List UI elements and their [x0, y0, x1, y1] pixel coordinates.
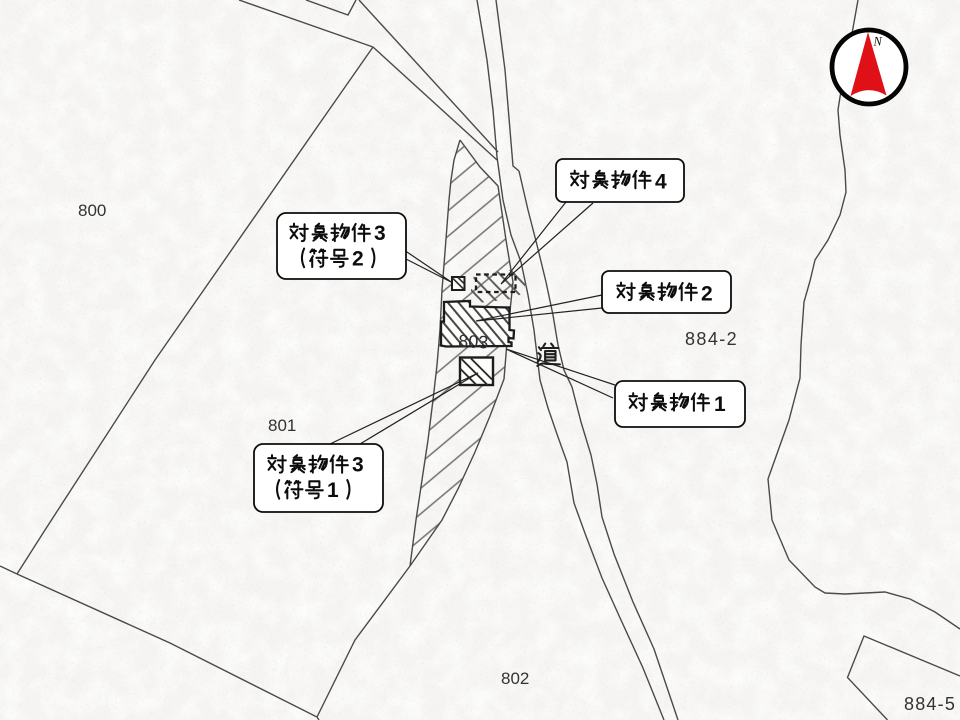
- svg-text:884-2: 884-2: [685, 329, 738, 349]
- svg-text:800: 800: [78, 201, 106, 220]
- svg-text:803: 803: [458, 331, 489, 353]
- svg-text:N: N: [873, 35, 883, 49]
- svg-text:2: 2: [352, 248, 364, 271]
- svg-text:2: 2: [701, 283, 713, 306]
- svg-text:1: 1: [714, 393, 726, 416]
- svg-text:4: 4: [655, 171, 667, 194]
- svg-text:801: 801: [268, 416, 296, 435]
- svg-text:884-5: 884-5: [904, 694, 956, 714]
- svg-text:1: 1: [327, 479, 339, 502]
- svg-text:802: 802: [501, 669, 529, 688]
- svg-text:3: 3: [352, 454, 364, 477]
- svg-text:3: 3: [374, 222, 386, 245]
